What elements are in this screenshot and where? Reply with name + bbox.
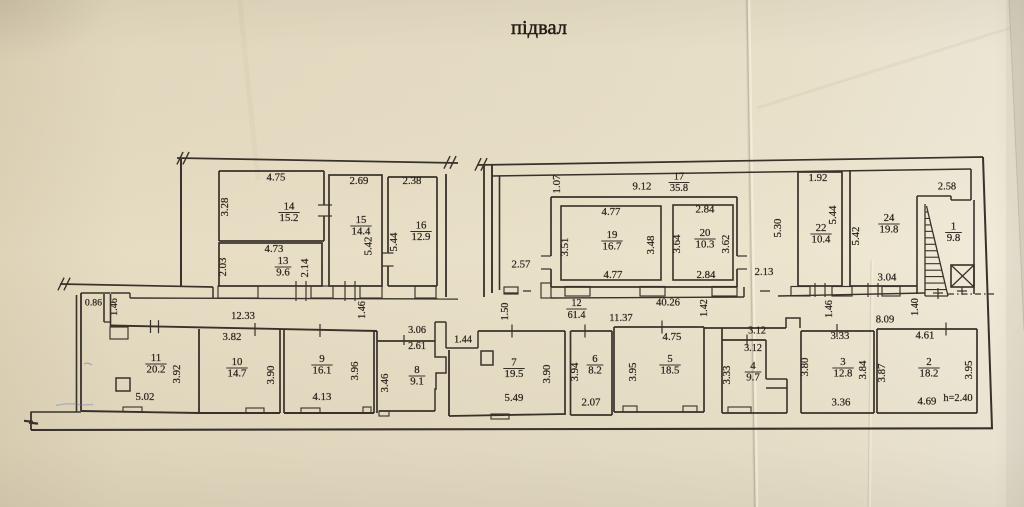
svg-text:7: 7 xyxy=(511,357,517,369)
svg-text:1.40: 1.40 xyxy=(910,298,921,316)
svg-text:15.2: 15.2 xyxy=(280,212,299,224)
svg-text:19: 19 xyxy=(607,229,618,241)
svg-text:20: 20 xyxy=(700,227,711,239)
svg-text:19.5: 19.5 xyxy=(505,368,524,380)
svg-text:12.9: 12.9 xyxy=(412,231,431,243)
svg-text:4: 4 xyxy=(750,360,756,372)
svg-text:3.96: 3.96 xyxy=(349,361,361,380)
svg-text:3.87: 3.87 xyxy=(876,363,888,382)
svg-text:3.12: 3.12 xyxy=(748,326,766,337)
svg-text:19.8: 19.8 xyxy=(880,224,899,236)
svg-text:16: 16 xyxy=(416,220,427,232)
svg-text:8.2: 8.2 xyxy=(588,365,602,377)
svg-text:14.7: 14.7 xyxy=(228,368,247,380)
svg-text:9: 9 xyxy=(319,353,324,365)
svg-text:3.62: 3.62 xyxy=(720,235,732,254)
svg-text:3.94: 3.94 xyxy=(569,362,581,381)
svg-text:12.33: 12.33 xyxy=(231,311,255,322)
svg-text:22: 22 xyxy=(816,222,827,234)
svg-text:3.64: 3.64 xyxy=(671,234,683,253)
svg-text:3.92: 3.92 xyxy=(171,365,183,384)
svg-text:3.84: 3.84 xyxy=(857,360,869,379)
svg-text:4.61: 4.61 xyxy=(916,330,935,342)
svg-text:підвал: підвал xyxy=(511,17,567,39)
svg-text:3.95: 3.95 xyxy=(627,363,639,382)
svg-text:11.37: 11.37 xyxy=(609,313,632,324)
svg-text:5.44: 5.44 xyxy=(388,232,400,251)
svg-text:1: 1 xyxy=(951,221,956,233)
svg-text:12.8: 12.8 xyxy=(834,368,853,380)
svg-text:10: 10 xyxy=(232,356,243,368)
svg-text:3.06: 3.06 xyxy=(408,325,426,336)
svg-text:2.69: 2.69 xyxy=(350,175,369,187)
svg-text:4.77: 4.77 xyxy=(602,206,621,218)
svg-text:13: 13 xyxy=(278,255,289,267)
svg-text:2.84: 2.84 xyxy=(697,269,716,281)
svg-text:5.42: 5.42 xyxy=(363,237,375,256)
svg-text:3.33: 3.33 xyxy=(831,330,850,342)
svg-text:5: 5 xyxy=(667,353,672,365)
svg-text:4.69: 4.69 xyxy=(918,396,937,408)
svg-text:2.58: 2.58 xyxy=(938,182,956,193)
svg-text:5.49: 5.49 xyxy=(505,392,524,404)
svg-text:2.03: 2.03 xyxy=(217,258,229,277)
svg-text:1.07: 1.07 xyxy=(551,174,563,193)
svg-text:12: 12 xyxy=(571,298,581,309)
svg-text:1.92: 1.92 xyxy=(809,172,828,184)
svg-text:3.51: 3.51 xyxy=(559,238,571,257)
svg-text:4.75: 4.75 xyxy=(663,331,682,343)
svg-text:2.07: 2.07 xyxy=(582,397,601,409)
svg-text:3.04: 3.04 xyxy=(878,272,897,284)
svg-text:5.02: 5.02 xyxy=(136,391,155,403)
svg-text:4.77: 4.77 xyxy=(604,269,623,281)
svg-text:10.3: 10.3 xyxy=(696,239,715,251)
svg-text:1.50: 1.50 xyxy=(500,303,511,321)
svg-text:3.46: 3.46 xyxy=(379,373,391,392)
svg-text:2.38: 2.38 xyxy=(403,175,422,187)
svg-text:9.12: 9.12 xyxy=(633,181,652,193)
svg-text:16.1: 16.1 xyxy=(313,365,332,377)
svg-text:15: 15 xyxy=(356,214,367,226)
svg-text:1.46: 1.46 xyxy=(824,300,835,318)
svg-text:3.90: 3.90 xyxy=(265,366,277,385)
svg-text:5.30: 5.30 xyxy=(772,219,784,238)
svg-text:9.8: 9.8 xyxy=(947,232,961,244)
svg-text:2.61: 2.61 xyxy=(408,341,426,352)
svg-text:6: 6 xyxy=(592,353,598,365)
svg-text:2.84: 2.84 xyxy=(696,204,715,216)
svg-text:8: 8 xyxy=(414,364,419,376)
svg-text:4.73: 4.73 xyxy=(265,243,284,255)
svg-text:3.90: 3.90 xyxy=(541,365,553,384)
svg-text:9.6: 9.6 xyxy=(276,267,290,279)
svg-text:3.28: 3.28 xyxy=(219,198,231,217)
svg-text:16.7: 16.7 xyxy=(603,241,622,253)
svg-text:2: 2 xyxy=(926,356,931,368)
svg-text:14: 14 xyxy=(284,201,295,213)
svg-text:3.36: 3.36 xyxy=(832,397,851,409)
svg-text:0.86: 0.86 xyxy=(85,298,102,309)
svg-text:h=2.40: h=2.40 xyxy=(943,393,972,404)
svg-text:4.13: 4.13 xyxy=(313,391,332,403)
svg-text:2.14: 2.14 xyxy=(299,258,311,277)
svg-text:1.46: 1.46 xyxy=(357,301,368,319)
svg-text:20.2: 20.2 xyxy=(147,364,166,376)
svg-text:18.5: 18.5 xyxy=(661,365,680,377)
svg-text:9.1: 9.1 xyxy=(410,376,424,388)
svg-text:17: 17 xyxy=(674,172,684,183)
svg-text:35.8: 35.8 xyxy=(670,183,688,194)
svg-text:8.09: 8.09 xyxy=(876,315,895,326)
svg-text:2.57: 2.57 xyxy=(512,259,531,271)
svg-text:3.80: 3.80 xyxy=(799,358,811,377)
svg-text:40.26: 40.26 xyxy=(656,298,680,309)
svg-text:10.4: 10.4 xyxy=(812,234,831,246)
svg-text:1.42: 1.42 xyxy=(699,299,710,317)
svg-text:5.42: 5.42 xyxy=(850,227,862,246)
svg-text:3.48: 3.48 xyxy=(645,236,657,255)
svg-text:3.95: 3.95 xyxy=(963,361,975,380)
svg-text:18.2: 18.2 xyxy=(920,368,939,380)
svg-text:14.4: 14.4 xyxy=(352,226,371,238)
svg-text:1.44: 1.44 xyxy=(454,335,472,346)
svg-text:5.44: 5.44 xyxy=(827,205,839,224)
svg-text:11: 11 xyxy=(151,352,161,364)
svg-text:3.33: 3.33 xyxy=(721,366,733,385)
svg-text:9.7: 9.7 xyxy=(746,372,760,384)
svg-text:61.4: 61.4 xyxy=(568,310,586,321)
svg-text:24: 24 xyxy=(884,212,895,224)
svg-text:3.82: 3.82 xyxy=(223,331,242,343)
svg-text:3: 3 xyxy=(840,356,845,368)
svg-text:2.13: 2.13 xyxy=(755,266,774,278)
svg-text:4.75: 4.75 xyxy=(267,172,286,184)
